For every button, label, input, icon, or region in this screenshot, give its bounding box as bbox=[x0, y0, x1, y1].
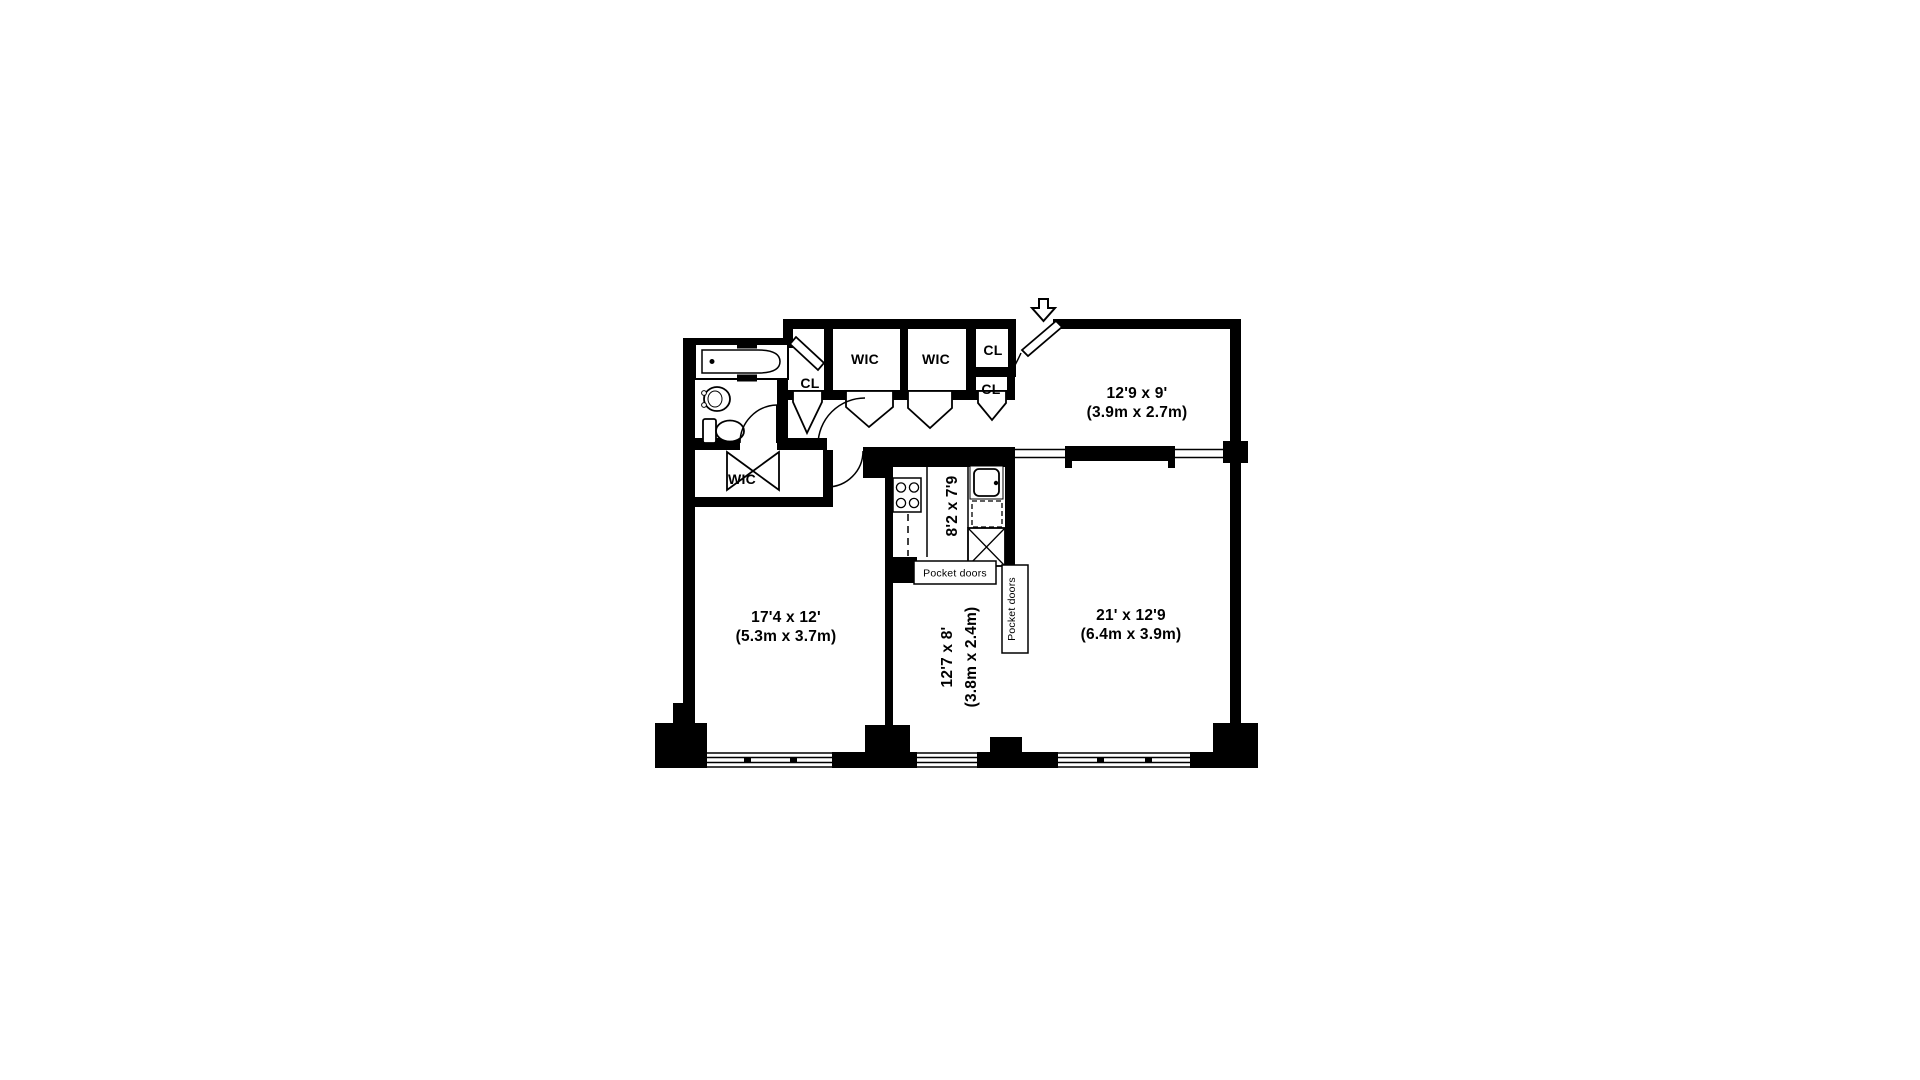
toilet-tank bbox=[703, 419, 716, 443]
wall-bedroom-wic-bottom bbox=[683, 497, 833, 507]
entry-door-leaf bbox=[1022, 321, 1062, 356]
living-dims-ft: 21' x 12'9 bbox=[1096, 607, 1166, 624]
wall-left bbox=[683, 338, 695, 752]
cl-label-entry-bottom: CL bbox=[981, 381, 1000, 397]
window-bedroom-glass bbox=[707, 752, 832, 768]
bathroom-fixtures bbox=[695, 342, 788, 444]
bedroom-dims-m: (5.3m x 3.7m) bbox=[736, 628, 837, 645]
closet-door-linen bbox=[793, 391, 822, 433]
stove-burner bbox=[896, 498, 905, 507]
wall-bedroom-dining bbox=[885, 467, 893, 725]
floor-plan-drawing: Pocket doors Pocket doors 12'9 x 9' (3.9… bbox=[0, 0, 1920, 1080]
closet-door-wic-left bbox=[846, 391, 893, 427]
pier-bedroom-dining bbox=[865, 725, 910, 752]
wall-wic1-left bbox=[824, 319, 833, 400]
foyer-dims-ft: 12'9 x 9' bbox=[1107, 385, 1168, 402]
window-mullion bbox=[744, 757, 751, 763]
wall-wic-divider bbox=[900, 319, 908, 400]
linen-closet-diagonal-door bbox=[790, 337, 824, 370]
bathroom-sink-bowl bbox=[708, 391, 722, 407]
foyer-dims-m: (3.9m x 2.7m) bbox=[1087, 404, 1188, 421]
wall-foyer-living bbox=[1065, 446, 1175, 461]
window-mullion bbox=[1145, 757, 1152, 763]
wic-label-hall-right: WIC bbox=[922, 351, 950, 367]
closet-door-wic-right bbox=[908, 391, 952, 428]
window-dining-glass bbox=[917, 752, 977, 768]
wic-label-bedroom: WIC bbox=[728, 471, 756, 487]
cl-label-entry-top: CL bbox=[983, 342, 1002, 358]
wall-foyer-living-tick-left bbox=[1065, 461, 1072, 468]
wall-right bbox=[1230, 319, 1241, 752]
wic-label-hall-left: WIC bbox=[851, 351, 879, 367]
window-bedroom bbox=[707, 752, 832, 768]
kitchen-dims-ft: 8'2 x 7'9 bbox=[944, 475, 961, 536]
window-mullion bbox=[790, 757, 797, 763]
wall-cl-divider bbox=[972, 367, 1016, 377]
window-dining bbox=[917, 752, 977, 768]
bathtub-grab-bar-top bbox=[737, 342, 757, 349]
window-living bbox=[1058, 752, 1190, 768]
wall-foyer-living-tick-right bbox=[1168, 461, 1175, 468]
wall-kitchen-bottom-stub bbox=[890, 557, 917, 583]
wall-bedroom-wic-right-stub bbox=[823, 450, 833, 507]
sink-tap bbox=[702, 403, 707, 408]
window-mullion bbox=[1097, 757, 1104, 763]
bathtub-drain bbox=[710, 359, 715, 364]
windows bbox=[707, 752, 1190, 768]
stove-burner bbox=[909, 498, 918, 507]
living-dims-m: (6.4m x 3.9m) bbox=[1081, 626, 1182, 643]
pier-bottom-left bbox=[655, 723, 707, 752]
pocket-doors-label-kitchen: Pocket doors bbox=[923, 568, 987, 580]
exterior-walls bbox=[655, 319, 1258, 768]
pier-dining-living bbox=[990, 737, 1022, 752]
bedroom-dims-ft: 17'4 x 12' bbox=[751, 609, 821, 626]
sink-tap bbox=[702, 391, 707, 396]
bedroom-wic-bifold-right bbox=[753, 452, 779, 490]
dining-dims-m: (3.8m x 2.4m) bbox=[963, 607, 980, 708]
wall-cl2-right bbox=[1007, 377, 1015, 400]
kitchen-faucet bbox=[994, 481, 998, 485]
wall-hallway-bottom bbox=[777, 438, 827, 450]
dishwasher bbox=[972, 501, 1002, 527]
cl-label-linen: CL bbox=[800, 375, 819, 391]
stove-burner bbox=[909, 483, 918, 492]
wall-right-junction-block bbox=[1223, 441, 1248, 463]
pier-bottom-right bbox=[1213, 723, 1258, 752]
stove-burner bbox=[896, 483, 905, 492]
wall-top-right-of-entry bbox=[1053, 319, 1233, 329]
window-living-glass bbox=[1058, 752, 1190, 768]
wall-kitchen-right bbox=[1005, 447, 1015, 568]
floor-plan-page: Pocket doors Pocket doors 12'9 x 9' (3.9… bbox=[0, 0, 1920, 1080]
pocket-doors-label-living: Pocket doors bbox=[1006, 577, 1018, 641]
bathroom-door-arc bbox=[740, 405, 777, 443]
pier-bottom-left-stem bbox=[673, 703, 683, 725]
dining-dims-ft: 12'7 x 8' bbox=[939, 627, 956, 688]
bathtub-grab-bar-bottom bbox=[737, 375, 757, 382]
wall-wic2-right bbox=[966, 319, 976, 400]
entry-arrow-icon bbox=[1032, 299, 1055, 321]
room-labels: 12'9 x 9' (3.9m x 2.7m) 21' x 12'9 (6.4m… bbox=[736, 385, 1188, 707]
